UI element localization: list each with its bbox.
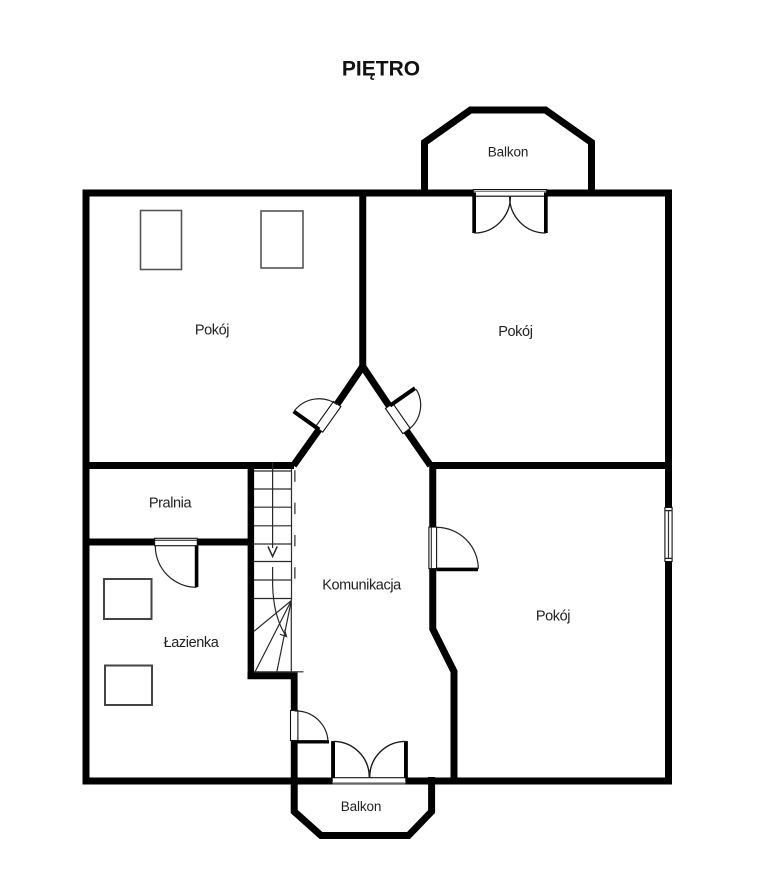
svg-text:Łazienka: Łazienka xyxy=(164,635,220,651)
svg-text:Pralnia: Pralnia xyxy=(149,496,193,512)
svg-text:PIĘTRO: PIĘTRO xyxy=(342,58,420,81)
svg-text:Pokój: Pokój xyxy=(536,609,570,625)
svg-text:Pokój: Pokój xyxy=(195,323,229,339)
svg-text:Balkon: Balkon xyxy=(341,799,381,814)
svg-text:Komunikacja: Komunikacja xyxy=(322,578,402,594)
svg-text:Pokój: Pokój xyxy=(498,324,532,340)
svg-text:Balkon: Balkon xyxy=(488,145,528,160)
